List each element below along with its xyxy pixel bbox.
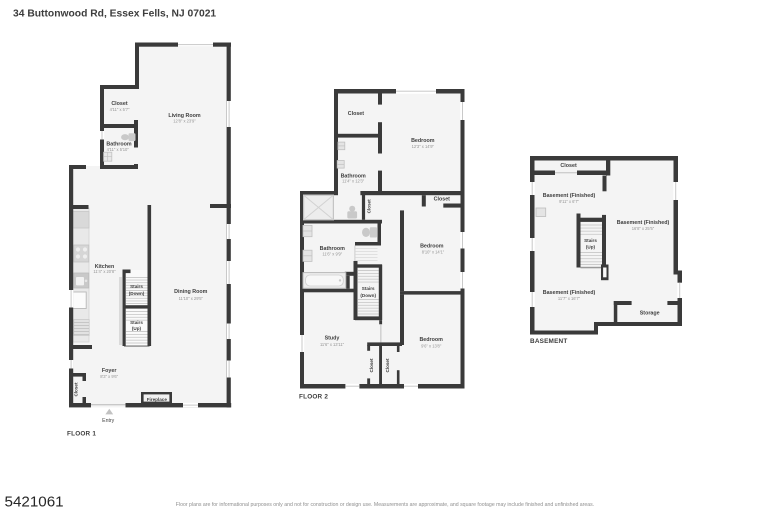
svg-text:11'10" x 29'5": 11'10" x 29'5" — [179, 296, 204, 301]
svg-text:Closet: Closet — [385, 358, 390, 373]
svg-text:Closet: Closet — [74, 382, 79, 397]
svg-text:11'7" x 16'7": 11'7" x 16'7" — [558, 296, 581, 301]
svg-text:11'4" x 20'8": 11'4" x 20'8" — [93, 269, 116, 274]
svg-text:Stairs: Stairs — [130, 284, 143, 289]
svg-text:Stairs: Stairs — [362, 286, 375, 291]
svg-text:FLOOR 1: FLOOR 1 — [67, 431, 96, 438]
svg-text:Dining Room: Dining Room — [174, 289, 207, 295]
svg-text:12'3" x 14'9": 12'3" x 14'9" — [412, 144, 435, 149]
svg-text:Entry: Entry — [102, 418, 115, 424]
svg-text:11'6" x 13'11": 11'6" x 13'11" — [320, 342, 345, 347]
svg-text:11'4" x 12'3": 11'4" x 12'3" — [342, 179, 365, 184]
svg-text:Storage: Storage — [640, 310, 660, 316]
svg-text:11'6" x 9'9": 11'6" x 9'9" — [322, 252, 342, 257]
svg-text:Closet: Closet — [560, 163, 577, 169]
svg-text:8'10" x 14'1": 8'10" x 14'1" — [422, 250, 445, 255]
svg-text:FLOOR 2: FLOOR 2 — [299, 394, 328, 401]
svg-text:Closet: Closet — [367, 199, 372, 214]
svg-text:(Up): (Up) — [132, 326, 142, 331]
svg-text:34 Buttonwood Rd, Essex Fells,: 34 Buttonwood Rd, Essex Fells, NJ 07021 — [13, 8, 216, 19]
svg-text:16'8" x 25'5": 16'8" x 25'5" — [632, 226, 655, 231]
svg-text:Closet: Closet — [369, 358, 374, 373]
svg-text:9'11" x 6'7": 9'11" x 6'7" — [559, 199, 579, 204]
svg-text:12'8" x 23'9": 12'8" x 23'9" — [173, 118, 196, 123]
svg-text:(Up): (Up) — [586, 245, 596, 250]
svg-text:Floor plans are for informatio: Floor plans are for informational purpos… — [176, 502, 594, 508]
svg-text:Stairs: Stairs — [584, 238, 597, 243]
svg-text:Fireplace: Fireplace — [147, 397, 168, 402]
svg-text:Closet: Closet — [348, 111, 365, 117]
svg-text:(Down): (Down) — [129, 291, 145, 296]
svg-text:8'3" x 9'6": 8'3" x 9'6" — [100, 374, 118, 379]
svg-text:5421061: 5421061 — [5, 494, 64, 511]
svg-text:Bedroom: Bedroom — [420, 243, 444, 249]
svg-text:4'11" x 5'10": 4'11" x 5'10" — [107, 147, 130, 152]
svg-text:Bedroom: Bedroom — [419, 337, 443, 343]
svg-text:Stairs: Stairs — [130, 320, 143, 325]
svg-text:4'11" x 5'7": 4'11" x 5'7" — [110, 107, 130, 112]
svg-text:Study: Study — [325, 335, 340, 341]
svg-text:9'6" x 13'8": 9'6" x 13'8" — [421, 343, 442, 348]
svg-text:(Down): (Down) — [360, 293, 376, 298]
svg-text:Closet: Closet — [434, 196, 451, 202]
svg-text:BASEMENT: BASEMENT — [530, 338, 567, 345]
